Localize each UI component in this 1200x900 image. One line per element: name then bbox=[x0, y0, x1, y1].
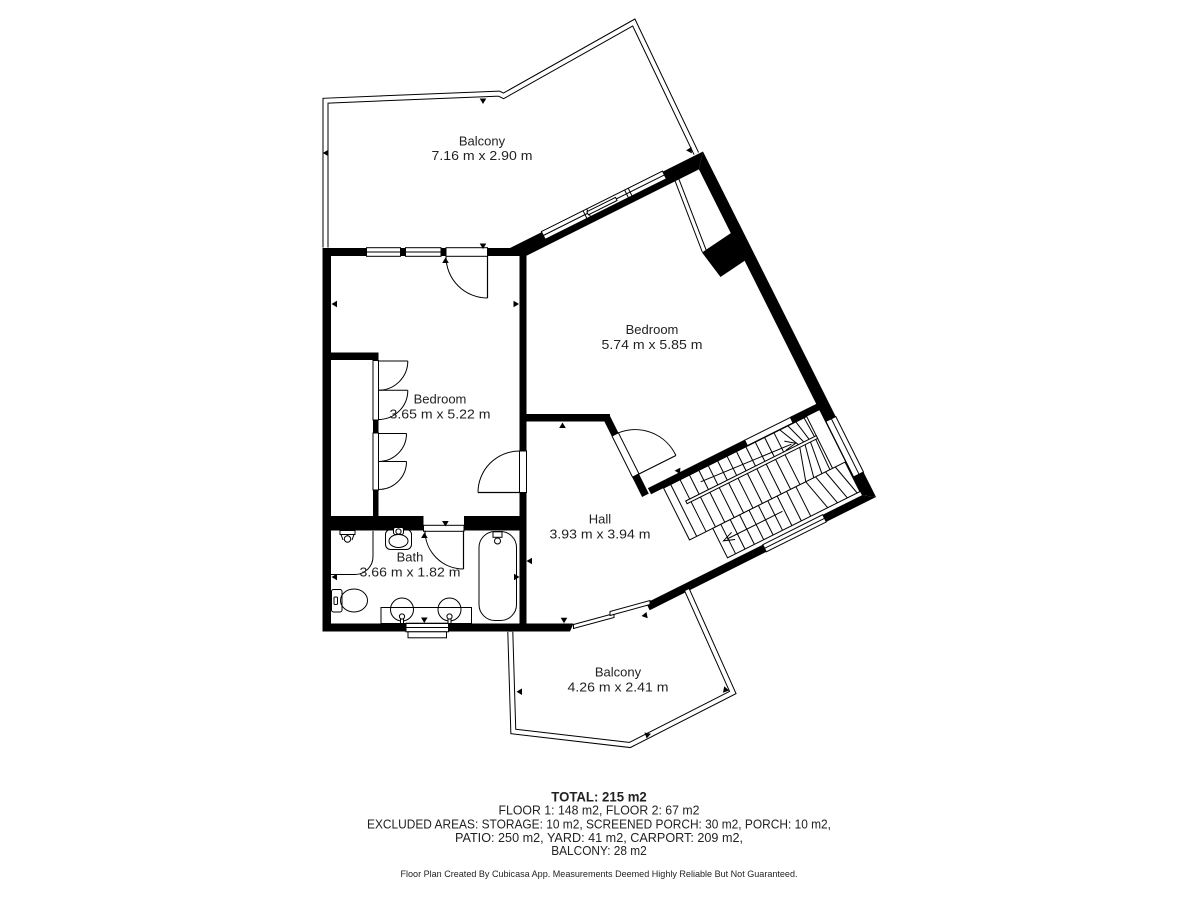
svg-text:BALCONY: 28 m2: BALCONY: 28 m2 bbox=[551, 843, 647, 858]
svg-text:4.26 m x 2.41 m: 4.26 m x 2.41 m bbox=[568, 680, 669, 695]
svg-text:7.16 m x 2.90 m: 7.16 m x 2.90 m bbox=[432, 148, 533, 163]
svg-text:FLOOR 1: 148 m2, FLOOR 2: 67 m: FLOOR 1: 148 m2, FLOOR 2: 67 m2 bbox=[499, 803, 700, 818]
svg-text:Balcony: Balcony bbox=[595, 665, 642, 680]
svg-text:Bedroom: Bedroom bbox=[414, 392, 467, 407]
svg-text:Balcony: Balcony bbox=[459, 134, 506, 149]
svg-text:Floor Plan Created By Cubicasa: Floor Plan Created By Cubicasa App. Meas… bbox=[401, 869, 798, 880]
svg-text:3.66 m x 1.82 m: 3.66 m x 1.82 m bbox=[360, 565, 461, 580]
svg-text:3.93 m x 3.94 m: 3.93 m x 3.94 m bbox=[550, 527, 651, 542]
svg-text:Bath: Bath bbox=[397, 550, 424, 565]
svg-text:5.74 m x 5.85 m: 5.74 m x 5.85 m bbox=[602, 337, 703, 352]
svg-text:Bedroom: Bedroom bbox=[626, 322, 679, 337]
svg-text:3.65 m x 5.22 m: 3.65 m x 5.22 m bbox=[390, 407, 491, 422]
svg-text:Hall: Hall bbox=[589, 512, 612, 527]
